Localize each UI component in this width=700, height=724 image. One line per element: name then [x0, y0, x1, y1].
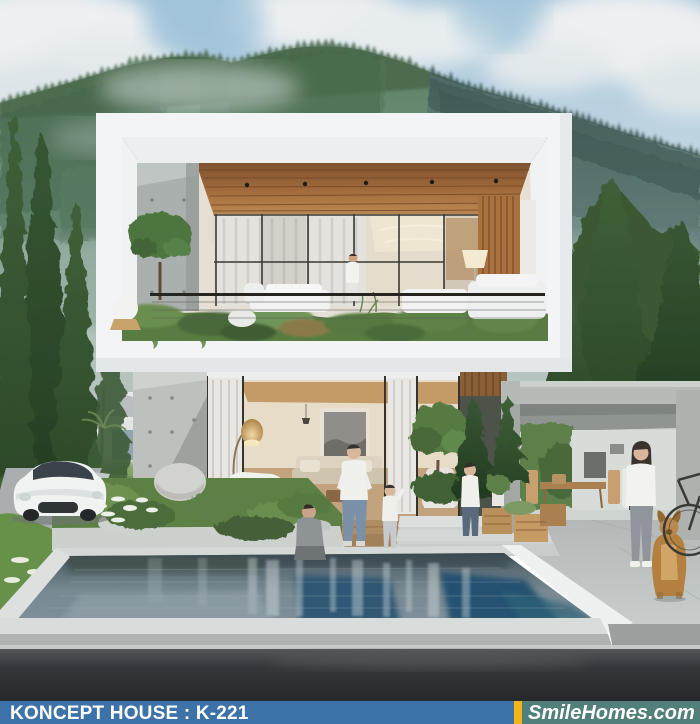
- svg-text:KONCEPT HOUSE : K-221: KONCEPT HOUSE : K-221: [10, 703, 249, 724]
- svg-text:SmileHomes.com: SmileHomes.com: [528, 702, 695, 724]
